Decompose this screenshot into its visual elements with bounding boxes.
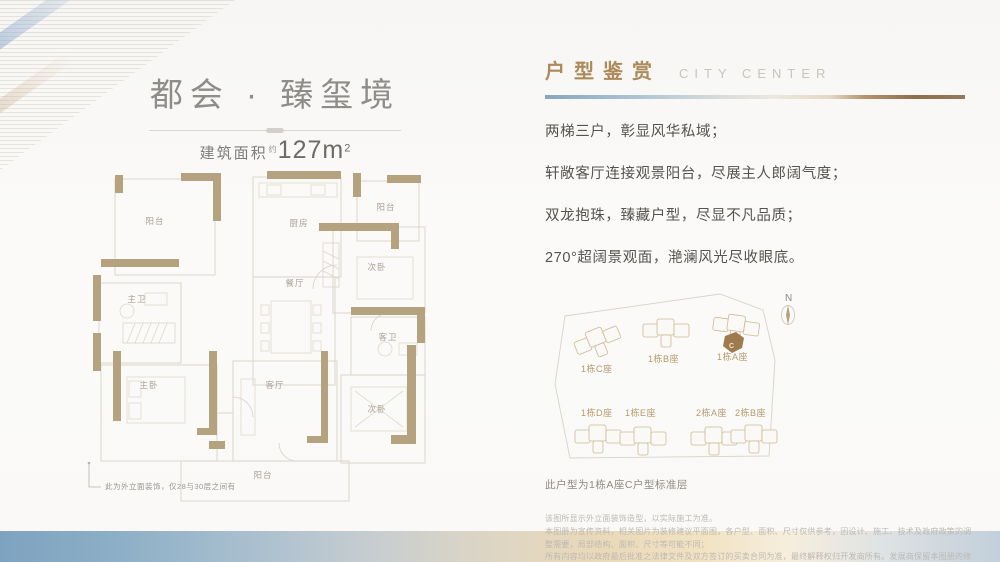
page-title: 都会 · 臻玺境 xyxy=(85,68,465,116)
room-label-guest-bath: 客卫 xyxy=(378,331,397,343)
selling-point: 双龙抱珠，臻藏户型，尽显不凡品质； xyxy=(545,204,973,225)
building-1B-footprint xyxy=(643,319,689,347)
compass-icon: N xyxy=(782,293,795,325)
selling-points: 两梯三户，彰显风华私域； 轩敞客厅连接观景阳台，尽展主人郎阔气度； 双龙抱珠，臻… xyxy=(545,120,973,267)
facade-note: 此为外立面装饰，仅28与30层之间有 xyxy=(105,481,236,492)
floor-plan-doors xyxy=(233,265,389,461)
site-plan-drawing: N C xyxy=(545,288,969,474)
building-1D-footprint xyxy=(575,425,621,453)
section-header: 户型鉴赏 CITY CENTER xyxy=(545,55,973,84)
area-line: 建筑面积约127m2 xyxy=(85,136,465,165)
room-label-bedroom2: 次卧 xyxy=(367,261,386,273)
svg-text:C: C xyxy=(729,343,734,350)
building-1C-footprint xyxy=(572,321,625,364)
room-label-living: 客厅 xyxy=(265,379,284,391)
brochure-page: 都会 · 臻玺境 建筑面积约127m2 xyxy=(0,0,1000,562)
disclaimer-line: 所有内容均以政府最后批准之法律文件及双方签订的买卖合同为准，最终解释权归开发商所… xyxy=(545,551,973,562)
floor-plan: 阳台 厨房 阳台 次卧 餐厅 主卫 客卫 主卧 客厅 次卧 阳台 此为外立面装饰… xyxy=(85,165,465,510)
room-label-master-bath: 主卫 xyxy=(127,293,146,305)
building-label-1B: 1栋B座 xyxy=(648,353,679,364)
unit-appreciation-section: 户型鉴赏 CITY CENTER 两梯三户，彰显风华私域； 轩敞客厅连接观景阳台… xyxy=(545,55,973,562)
highlighted-unit-c: C xyxy=(723,332,744,353)
building-label-2A: 2栋A座 xyxy=(696,407,727,418)
building-2B-footprint xyxy=(731,425,777,453)
room-label-balcony-tl: 阳台 xyxy=(145,215,164,227)
disclaimer: 该图所显示外立面装饰造型，以实际施工为准。 本图册为宣传资料，相关图片为装修建议… xyxy=(545,513,973,562)
building-label-1C: 1栋C座 xyxy=(581,363,613,374)
floor-plan-section: 都会 · 臻玺境 建筑面积约127m2 xyxy=(85,60,465,520)
site-plan-caption: 此户型为1栋A座C户型标准层 xyxy=(545,477,973,492)
building-2A-footprint xyxy=(691,427,737,455)
room-label-balcony-tr: 阳台 xyxy=(376,201,395,213)
area-approx: 约 xyxy=(269,145,277,154)
section-title-cn: 户型鉴赏 xyxy=(545,55,661,84)
disclaimer-line: 本图册为宣传资料，相关图片为装修建议平面图，各户型、面积、尺寸仅供参考，因设计、… xyxy=(545,526,973,552)
area-exponent: 2 xyxy=(344,143,350,155)
building-label-1D: 1栋D座 xyxy=(581,407,613,418)
building-label-1A: 1栋A座 xyxy=(717,351,748,362)
selling-point: 两梯三户，彰显风华私域； xyxy=(545,120,973,141)
room-label-master-bedroom: 主卧 xyxy=(139,379,158,391)
building-label-2B: 2栋B座 xyxy=(735,407,766,418)
decor-gradient-bar xyxy=(545,95,965,99)
building-1E-footprint xyxy=(620,427,666,455)
room-label-kitchen: 厨房 xyxy=(289,217,308,229)
disclaimer-line: 该图所显示外立面装饰造型，以实际施工为准。 xyxy=(545,513,973,526)
divider-pill xyxy=(266,128,284,133)
title-divider xyxy=(149,130,401,131)
room-label-balcony-bottom: 阳台 xyxy=(253,469,272,481)
area-label: 建筑面积 xyxy=(200,145,268,162)
selling-point: 270°超阔景观面，滟澜风光尽收眼底。 xyxy=(545,246,973,267)
floor-plan-drawing xyxy=(85,165,465,510)
building-label-1E: 1栋E座 xyxy=(625,407,656,418)
area-value: 127m xyxy=(278,136,345,164)
facade-leader-line xyxy=(88,462,101,487)
site-plan: N C xyxy=(545,288,969,474)
svg-text:N: N xyxy=(785,293,792,304)
room-label-bedroom3: 次卧 xyxy=(367,403,386,415)
selling-point: 轩敞客厅连接观景阳台，尽展主人郎阔气度； xyxy=(545,162,973,183)
room-label-dining: 餐厅 xyxy=(285,277,304,289)
section-title-en: CITY CENTER xyxy=(679,66,831,81)
